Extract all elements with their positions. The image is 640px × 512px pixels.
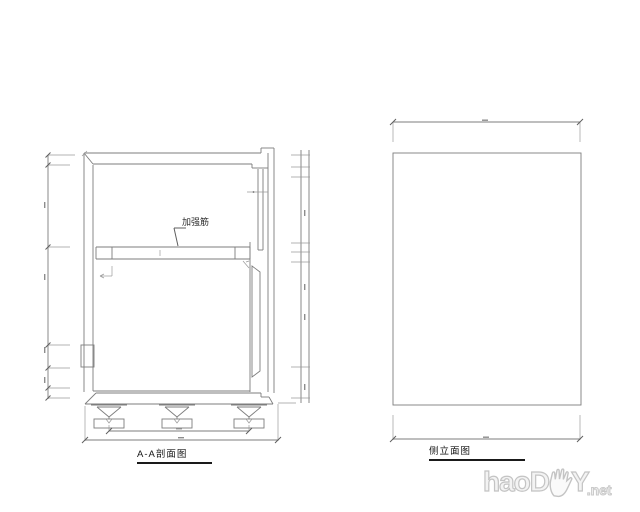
cad-drawing-canvas: 加强筋 A-A剖面图 侧立面图 haoD Y .net: [0, 0, 640, 512]
section-feet: [91, 405, 267, 428]
middle-dimension-chain: [278, 150, 310, 403]
section-bottom-dimensions: [82, 404, 281, 443]
elevation-view-title: 侧立面图: [429, 443, 525, 461]
section-view-title: A-A剖面图: [137, 446, 212, 464]
watermark: haoD Y .net: [483, 468, 612, 498]
hand-icon: [547, 468, 573, 498]
rib-annotation-label: 加强筋: [182, 215, 209, 228]
rib-leader-line: [174, 228, 186, 246]
section-left-dimension-chain: [44, 153, 75, 401]
watermark-text-main: haoD: [483, 468, 549, 496]
elevation-dimensions: [390, 119, 583, 442]
cad-linework: [0, 0, 640, 512]
watermark-text-suffix: .net: [587, 483, 612, 497]
section-view-linework: [81, 148, 274, 404]
elevation-view-linework: [393, 153, 581, 405]
